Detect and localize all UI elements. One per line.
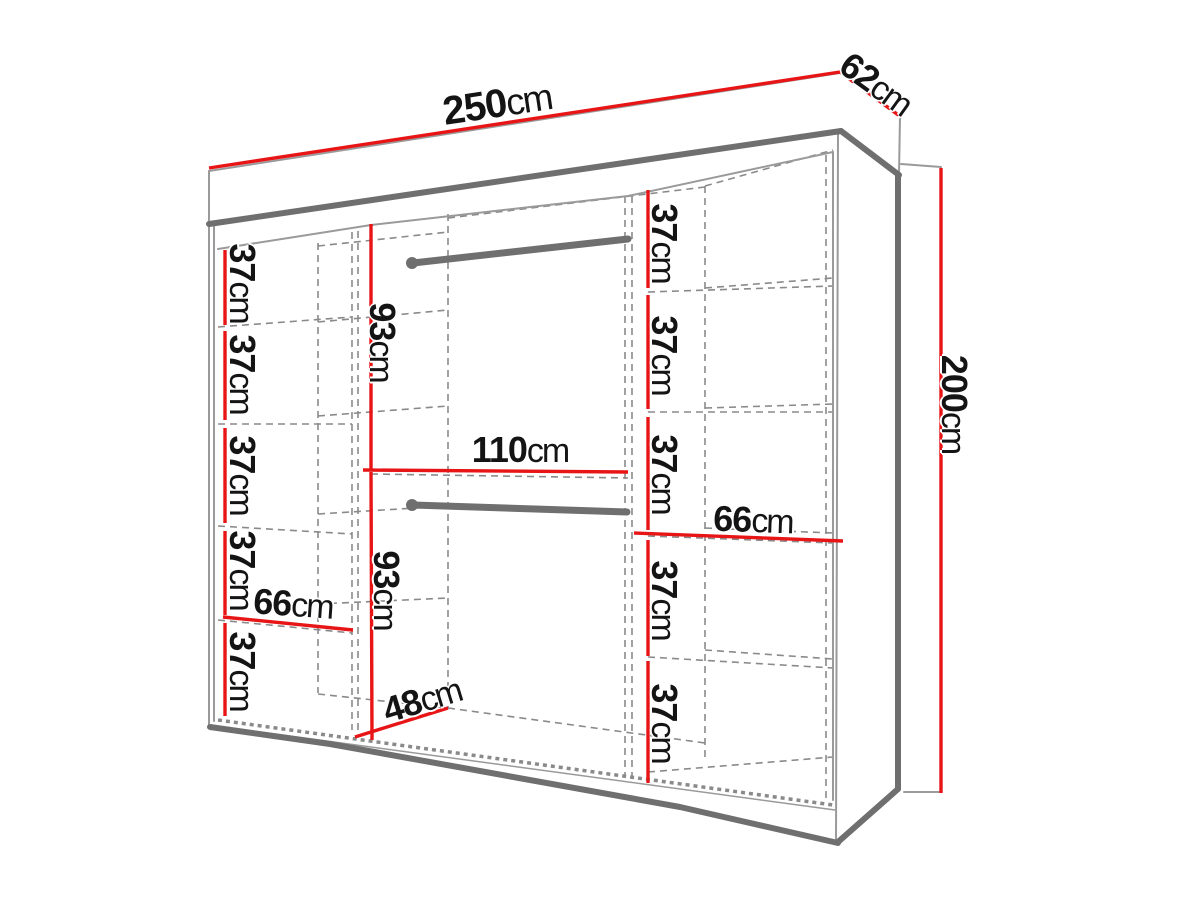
dim-value: 250 — [440, 81, 510, 134]
hanging-rail-top — [406, 239, 628, 269]
cabinet-outline-thick — [209, 131, 899, 843]
dim-label-upper-hanging-height: 93cm — [364, 302, 400, 381]
dim-label-left-shelf-3: 37cm — [224, 435, 260, 514]
dim-unit: cm — [644, 353, 682, 394]
dim-label-left-shelf-5: 37cm — [224, 631, 260, 710]
wardrobe-line-drawing — [0, 0, 1200, 899]
dim-label-lower-hanging-height: 93cm — [368, 550, 404, 629]
dim-label-right-shelf-width: 66cm — [713, 501, 794, 540]
dim-unit: cm — [751, 502, 794, 541]
dim-unit: cm — [222, 281, 260, 322]
dim-unit: cm — [222, 372, 260, 413]
dim-value: 93 — [362, 302, 403, 340]
dim-label-right-shelf-5: 37cm — [646, 683, 682, 762]
dim-value: 37 — [644, 434, 685, 472]
cabinet-outline-thin — [209, 73, 941, 841]
dim-value: 37 — [644, 683, 685, 721]
dim-unit: cm — [644, 241, 682, 282]
dim-value: 66 — [252, 580, 293, 624]
dim-value: 37 — [222, 435, 263, 473]
dim-unit: cm — [366, 588, 404, 629]
dim-value: 93 — [366, 550, 407, 588]
floor-hatch-line — [216, 720, 835, 810]
wardrobe-dimension-diagram: 250cm 62cm 200cm 37cm 37cm 37cm 37cm 37c… — [0, 0, 1200, 899]
dim-label-middle-width: 110cm — [472, 432, 568, 468]
dim-unit: cm — [290, 586, 334, 627]
dim-unit: cm — [222, 473, 260, 514]
dim-value: 110 — [472, 429, 527, 470]
dim-value: 66 — [713, 498, 752, 540]
dim-label-left-shelf-1: 37cm — [224, 243, 260, 322]
dim-value: 37 — [222, 530, 263, 568]
dim-value: 37 — [222, 243, 263, 281]
dim-value: 37 — [222, 334, 263, 372]
dim-label-left-shelf-2: 37cm — [224, 334, 260, 413]
dim-unit: cm — [934, 412, 972, 453]
dim-unit: cm — [644, 598, 682, 639]
dim-value: 37 — [644, 203, 685, 241]
dim-label-right-shelf-3: 37cm — [646, 434, 682, 513]
dim-label-right-shelf-4: 37cm — [646, 560, 682, 639]
dim-unit: cm — [644, 721, 682, 762]
dim-value: 37 — [644, 560, 685, 598]
dim-unit: cm — [644, 472, 682, 513]
dim-unit: cm — [503, 76, 554, 123]
hanging-rail-bottom — [406, 499, 627, 512]
dim-value: 37 — [222, 631, 263, 669]
dim-unit: cm — [222, 669, 260, 710]
dim-unit: cm — [527, 432, 568, 470]
dim-label-right-shelf-1: 37cm — [646, 203, 682, 282]
dim-label-left-shelf-width: 66cm — [252, 583, 334, 624]
dim-label-overall-height: 200cm — [936, 355, 972, 453]
dim-label-right-shelf-2: 37cm — [646, 315, 682, 394]
dimension-lines — [209, 72, 941, 793]
dim-unit: cm — [362, 340, 400, 381]
dim-value: 37 — [644, 315, 685, 353]
dim-line-110 — [363, 470, 628, 472]
dim-value: 200 — [934, 355, 975, 412]
